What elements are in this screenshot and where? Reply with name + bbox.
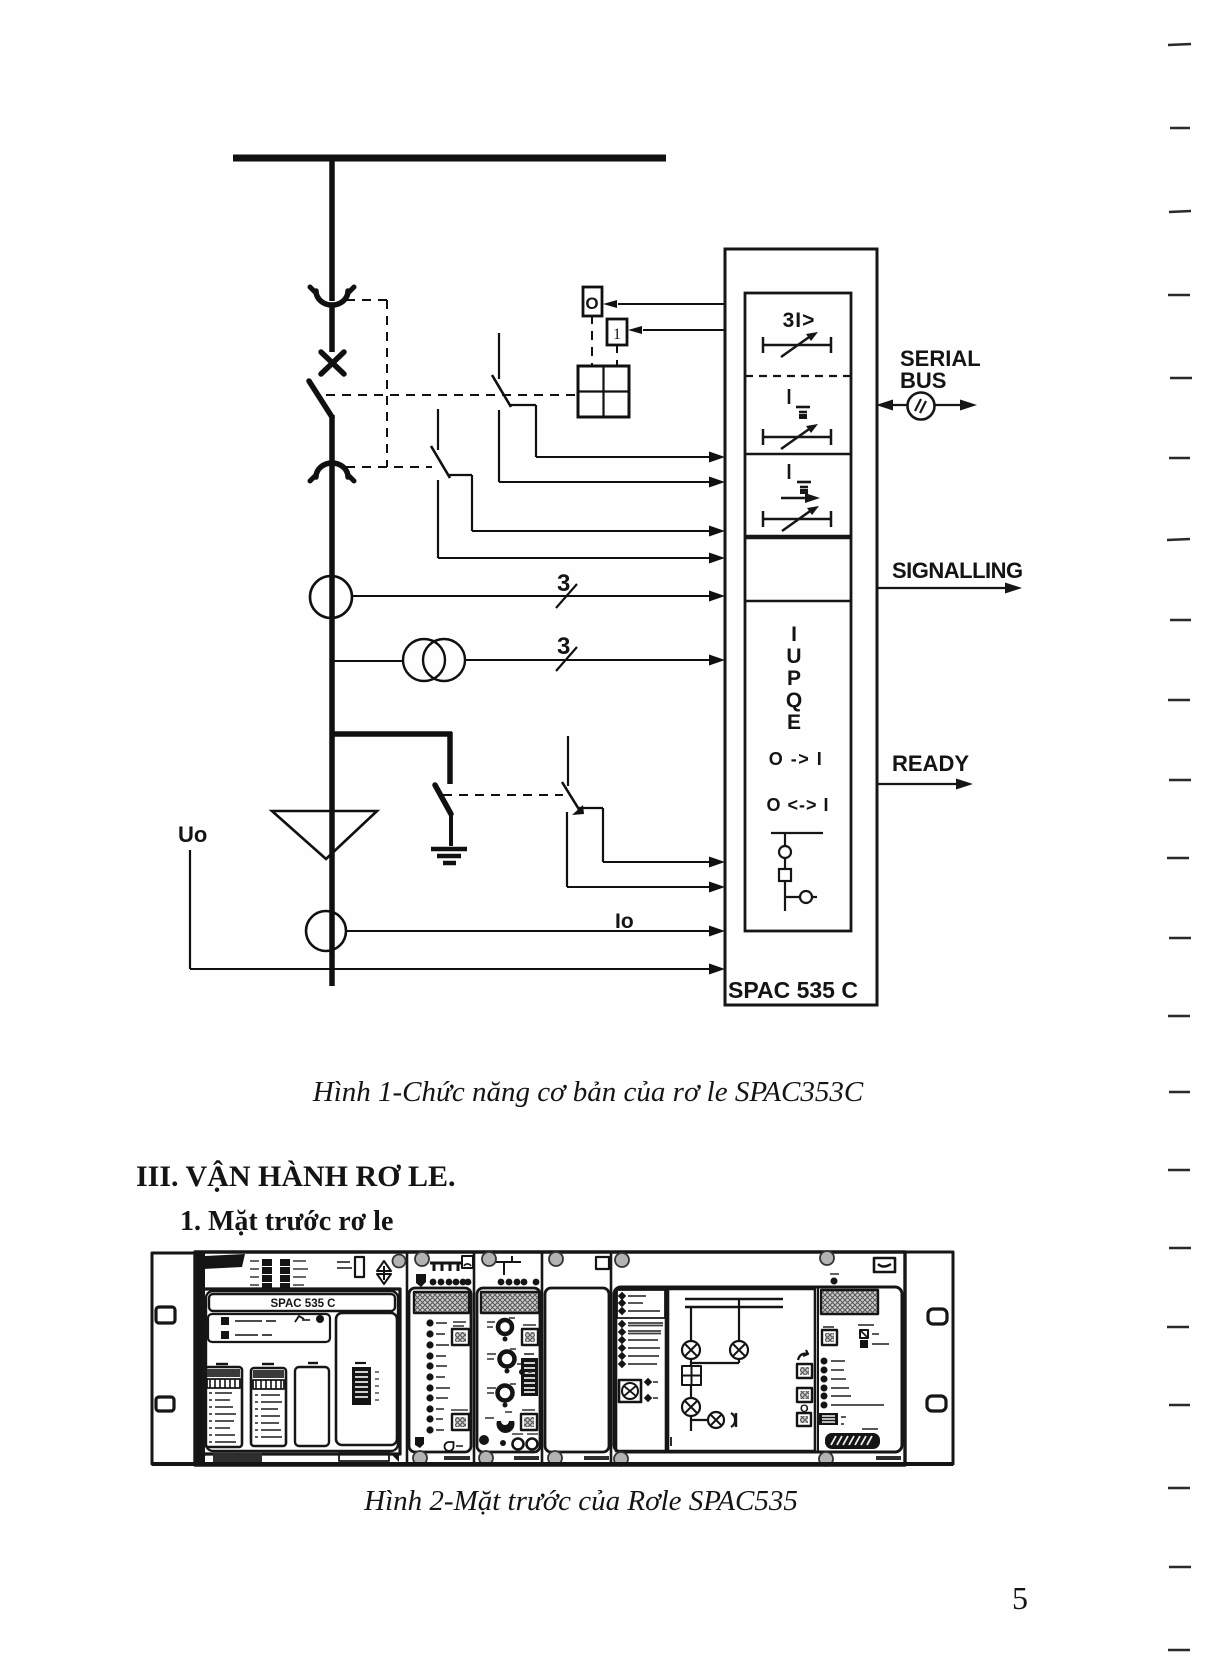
svg-text:SIGNALLING: SIGNALLING bbox=[892, 558, 1023, 583]
svg-text:3: 3 bbox=[557, 633, 570, 660]
svg-text:O <-> I: O <-> I bbox=[766, 795, 829, 815]
svg-text:Hình 1-Chức năng cơ bản của rơ: Hình 1-Chức năng cơ bản của rơ le SPAC35… bbox=[312, 1076, 864, 1108]
svg-text:1. Mặt trước rơ le: 1. Mặt trước rơ le bbox=[180, 1206, 393, 1237]
svg-text:BUS: BUS bbox=[900, 368, 946, 393]
svg-text:SPAC 535 C: SPAC 535 C bbox=[728, 977, 858, 1003]
svg-text:III. VẬN HÀNH RƠ LE.: III. VẬN HÀNH RƠ LE. bbox=[136, 1160, 456, 1193]
svg-text:5: 5 bbox=[1012, 1580, 1028, 1616]
svg-text:READY: READY bbox=[892, 751, 969, 776]
svg-text:U: U bbox=[786, 645, 801, 668]
svg-text:O -> I: O -> I bbox=[769, 749, 824, 769]
svg-text:Uo: Uo bbox=[178, 822, 207, 847]
svg-text:3: 3 bbox=[557, 570, 570, 597]
svg-text:E: E bbox=[787, 711, 801, 734]
svg-text:P: P bbox=[787, 667, 801, 690]
svg-text:Hình 2-Mặt trước của Rơle SPAC: Hình 2-Mặt trước của Rơle SPAC535 bbox=[363, 1485, 798, 1517]
svg-text:I: I bbox=[791, 623, 797, 646]
svg-text:Io: Io bbox=[615, 910, 634, 933]
svg-text:O: O bbox=[585, 294, 598, 313]
svg-text:SPAC 535 C: SPAC 535 C bbox=[271, 1298, 336, 1310]
svg-text:1: 1 bbox=[613, 326, 621, 343]
svg-text:Q: Q bbox=[786, 689, 802, 712]
svg-text:3I>: 3I> bbox=[783, 309, 816, 332]
